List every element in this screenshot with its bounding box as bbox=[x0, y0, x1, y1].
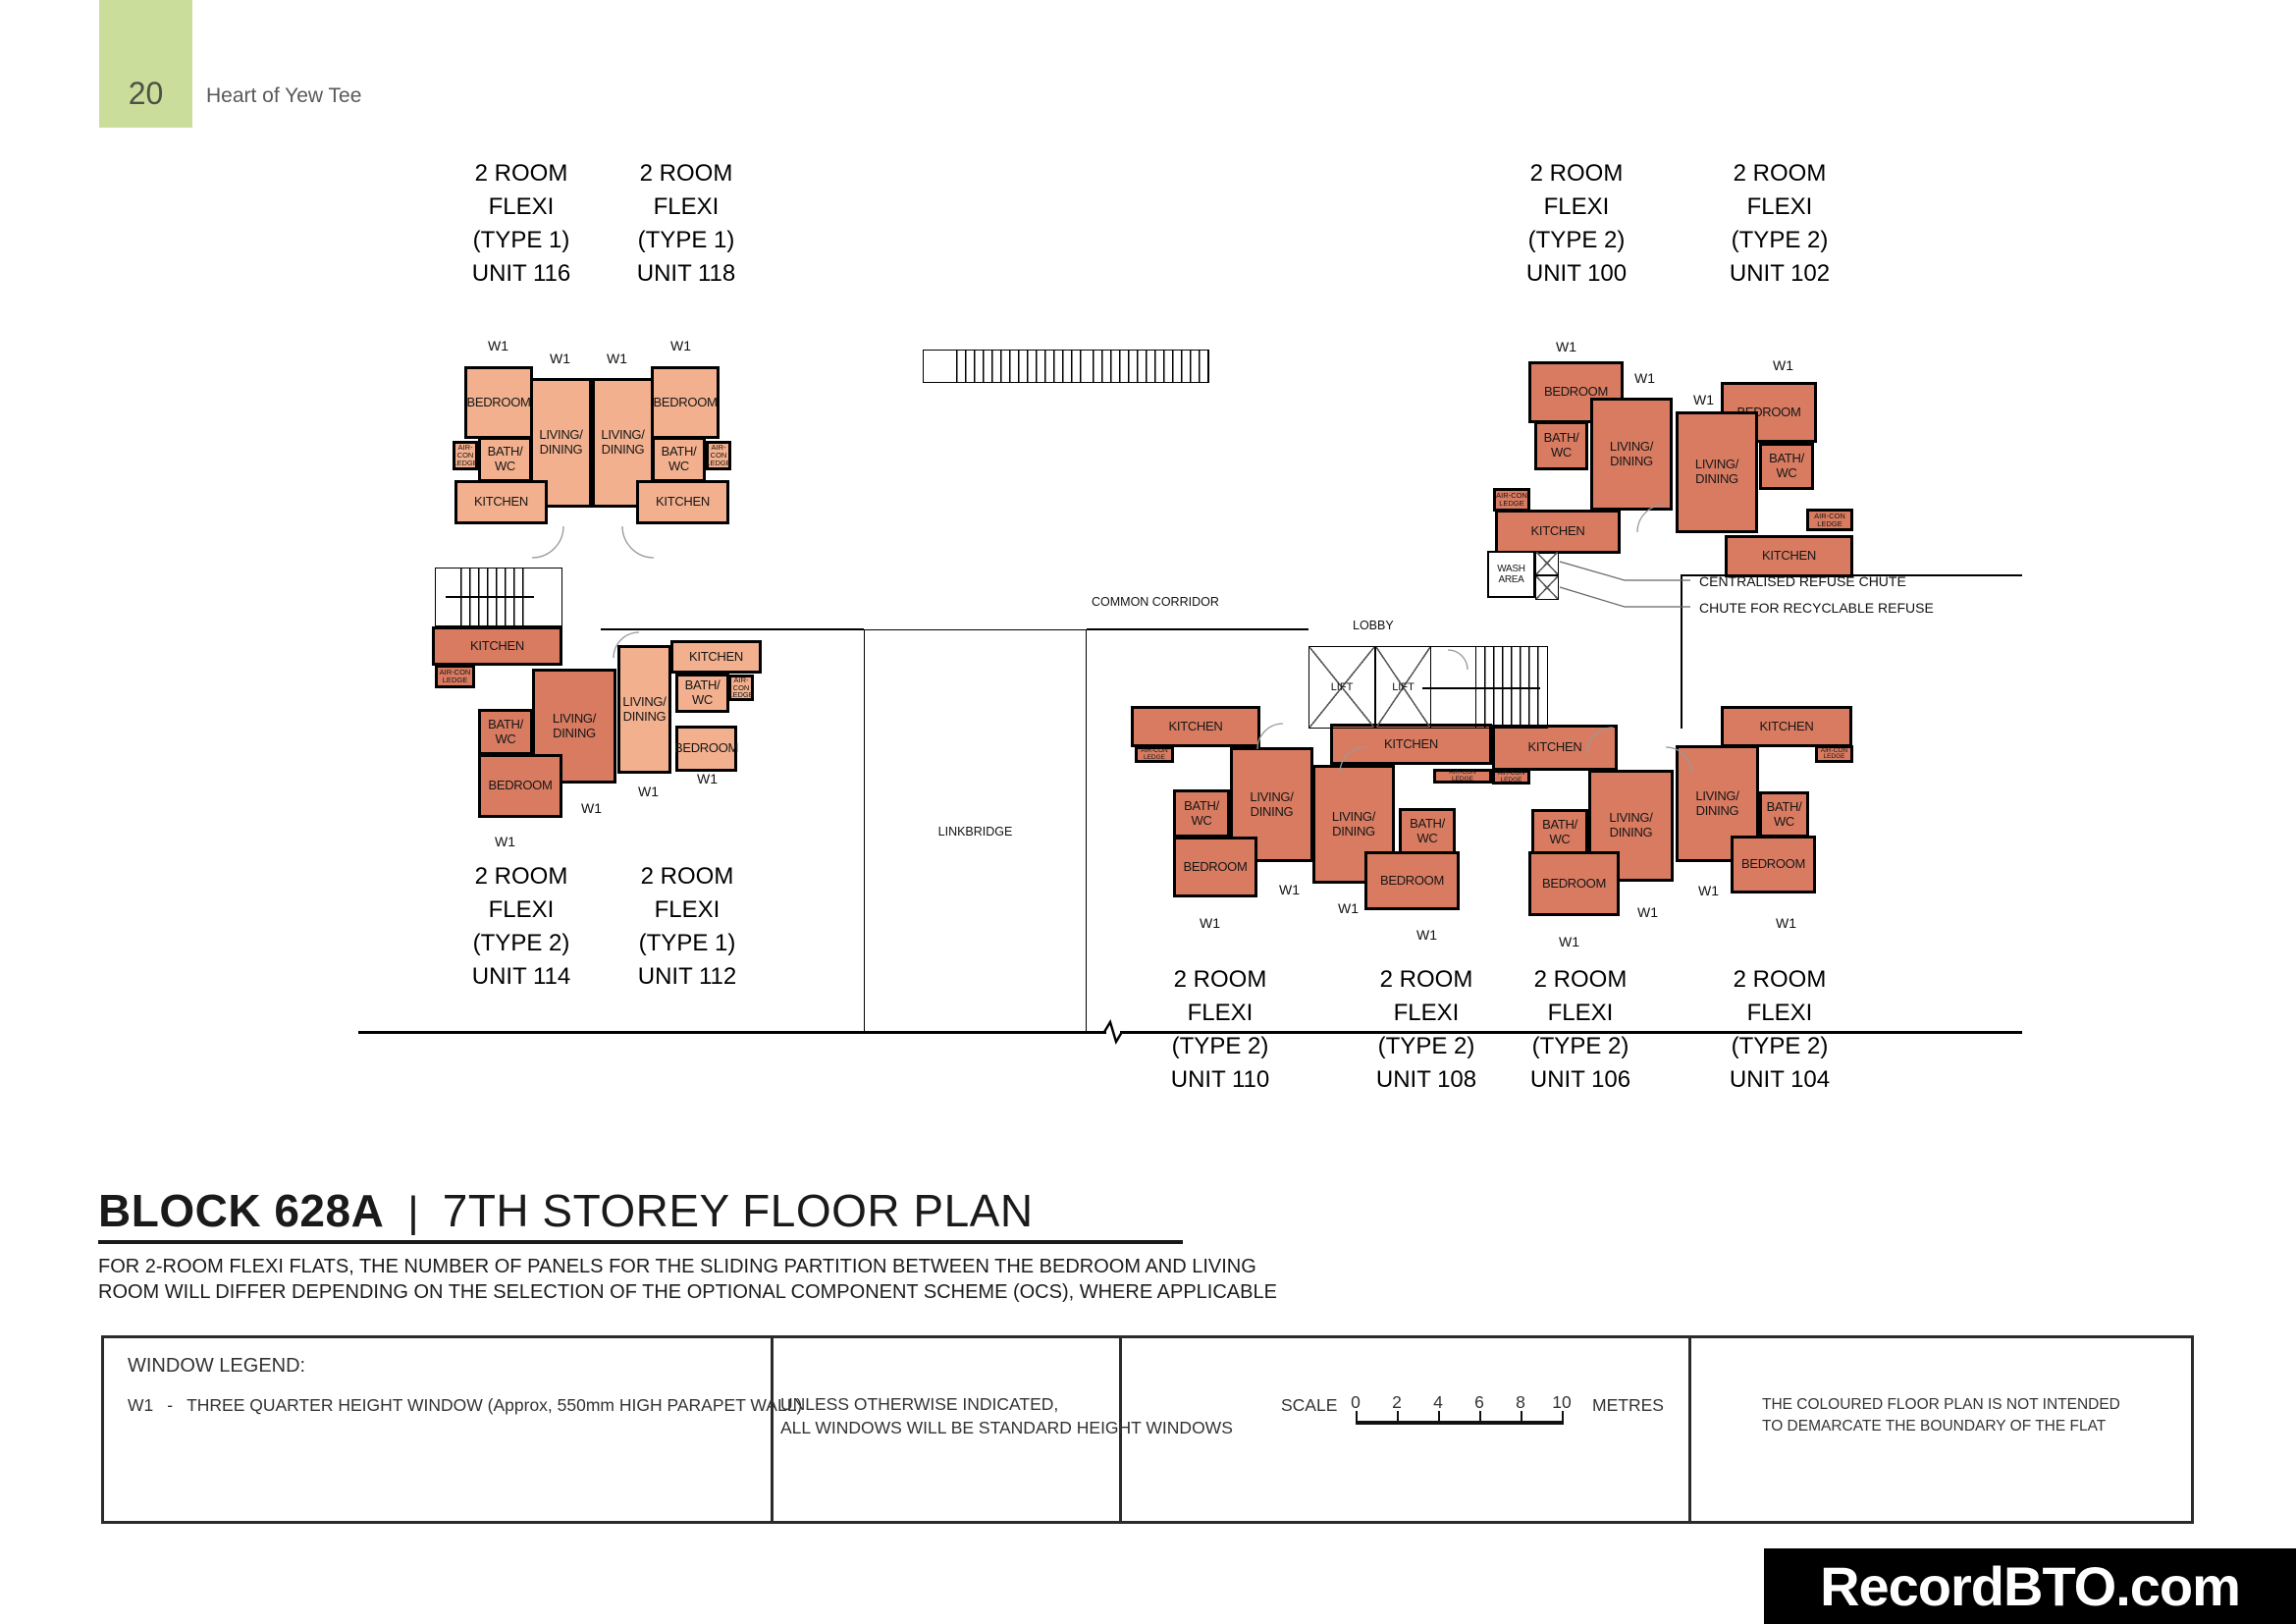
unit-label-108: 2 ROOM FLEXI (TYPE 2) UNIT 108 bbox=[1376, 963, 1476, 1097]
unit-112-living-dining: LIVING/ DINING bbox=[617, 645, 671, 774]
w1-window-tag: W1 bbox=[1693, 392, 1714, 407]
boundary-note: THE COLOURED FLOOR PLAN IS NOT INTENDED … bbox=[1762, 1394, 2120, 1436]
unit-label-110: 2 ROOM FLEXI (TYPE 2) UNIT 110 bbox=[1171, 963, 1270, 1097]
unit-100-kitchen: KITCHEN bbox=[1495, 510, 1621, 554]
w1-window-tag: W1 bbox=[1698, 883, 1719, 898]
unit-label-118: 2 ROOM FLEXI (TYPE 1) UNIT 118 bbox=[637, 157, 736, 291]
unit-114-bedroom: BEDROOM bbox=[478, 754, 562, 818]
scale-tick-mark bbox=[1479, 1411, 1481, 1421]
unit-102-living-dining: LIVING/ DINING bbox=[1676, 411, 1758, 533]
unit-108-bath-wc: BATH/ WC bbox=[1399, 808, 1456, 854]
lift-label: LIFT bbox=[1331, 681, 1354, 693]
w1-description: THREE QUARTER HEIGHT WINDOW (Approx, 550… bbox=[187, 1395, 802, 1416]
unit-label-116: 2 ROOM FLEXI (TYPE 1) UNIT 116 bbox=[472, 157, 571, 291]
scale-tick-6: 6 bbox=[1474, 1392, 1484, 1413]
legend-divider bbox=[1688, 1335, 1691, 1524]
corridor-line bbox=[601, 628, 864, 630]
unit-106-aircon-ledge: AIR-CON LEDGE bbox=[1492, 770, 1530, 785]
corridor-line bbox=[1087, 628, 1308, 630]
annotation-recyclable-chute: CHUTE FOR RECYCLABLE REFUSE bbox=[1699, 600, 1934, 616]
w1-window-tag: W1 bbox=[697, 771, 718, 786]
scale-tick-4: 4 bbox=[1433, 1392, 1443, 1413]
scale-label: SCALE bbox=[1281, 1395, 1337, 1416]
unit-112-bedroom: BEDROOM bbox=[675, 726, 737, 772]
unit-104-bath-wc: BATH/ WC bbox=[1759, 791, 1809, 838]
wash-area: WASH AREA bbox=[1487, 551, 1535, 598]
unit-label-104: 2 ROOM FLEXI (TYPE 2) UNIT 104 bbox=[1730, 963, 1830, 1097]
unit-label-106: 2 ROOM FLEXI (TYPE 2) UNIT 106 bbox=[1530, 963, 1630, 1097]
w1-window-tag: W1 bbox=[1559, 934, 1579, 949]
window-legend-row: W1 - THREE QUARTER HEIGHT WINDOW (Approx… bbox=[128, 1395, 802, 1416]
plan-title: BLOCK 628A | 7TH STOREY FLOOR PLAN bbox=[98, 1184, 1034, 1237]
w1-code: W1 bbox=[128, 1395, 153, 1416]
unit-114-bath-wc: BATH/ WC bbox=[478, 709, 533, 755]
unit-102-bath-wc: BATH/ WC bbox=[1759, 443, 1814, 490]
scale-tick-mark bbox=[1521, 1411, 1522, 1421]
corridor-line bbox=[1681, 574, 2022, 576]
storey-title: 7TH STOREY FLOOR PLAN bbox=[443, 1184, 1034, 1237]
unit-110-aircon-ledge: AIR-CON LEDGE bbox=[1135, 746, 1174, 763]
w1-window-tag: W1 bbox=[550, 351, 570, 366]
unit-label-114: 2 ROOM FLEXI (TYPE 2) UNIT 114 bbox=[472, 860, 571, 994]
w1-window-tag: W1 bbox=[638, 784, 659, 799]
windows-note: UNLESS OTHERWISE INDICATED, ALL WINDOWS … bbox=[780, 1392, 1233, 1439]
w1-window-tag: W1 bbox=[495, 834, 515, 849]
unit-112-kitchen: KITCHEN bbox=[670, 640, 762, 674]
unit-106-bath-wc: BATH/ WC bbox=[1531, 809, 1588, 856]
unit-106-bedroom: BEDROOM bbox=[1528, 851, 1620, 916]
unit-104-kitchen: KITCHEN bbox=[1721, 706, 1852, 747]
refuse-chute-box bbox=[1535, 551, 1559, 575]
unit-102-kitchen: KITCHEN bbox=[1725, 535, 1853, 577]
block-title: BLOCK 628A bbox=[98, 1184, 384, 1237]
scale-tick-10: 10 bbox=[1552, 1392, 1571, 1413]
brochure-page: 20 Heart of Yew Tee 2 ROOM FLEXI (TYPE 1… bbox=[0, 0, 2296, 1624]
watermark-box: RecordBTO.com bbox=[1764, 1548, 2296, 1624]
title-separator: | bbox=[407, 1188, 418, 1237]
window-legend-title: WINDOW LEGEND: bbox=[128, 1355, 305, 1378]
watermark: RecordBTO.com bbox=[1820, 1554, 2240, 1618]
page-number: 20 bbox=[129, 76, 164, 112]
trellis-stripes bbox=[956, 351, 1082, 382]
scale-tick-mark bbox=[1438, 1411, 1440, 1421]
unit-118-kitchen: KITCHEN bbox=[636, 480, 729, 524]
w1-window-tag: W1 bbox=[488, 338, 508, 353]
w1-window-tag: W1 bbox=[1634, 370, 1655, 386]
stair-line bbox=[446, 596, 534, 598]
unit-114-aircon-ledge: AIR-CON LEDGE bbox=[435, 665, 475, 688]
scale-tick-mark bbox=[1356, 1411, 1358, 1421]
w1-window-tag: W1 bbox=[1637, 904, 1658, 920]
page-number-box: 20 bbox=[99, 0, 192, 128]
w1-window-tag: W1 bbox=[670, 338, 691, 353]
w1-dash: - bbox=[167, 1395, 173, 1416]
title-note: FOR 2-ROOM FLEXI FLATS, THE NUMBER OF PA… bbox=[98, 1254, 1277, 1305]
trellis-stripes bbox=[1093, 351, 1208, 382]
unit-110-bath-wc: BATH/ WC bbox=[1173, 789, 1230, 838]
ground-line bbox=[1120, 1031, 2022, 1034]
brochure-title: Heart of Yew Tee bbox=[206, 84, 361, 108]
unit-112-aircon-ledge: AIR-CON LEDGE bbox=[728, 675, 754, 701]
unit-108-kitchen: KITCHEN bbox=[1330, 724, 1492, 765]
scale-tick-8: 8 bbox=[1516, 1392, 1525, 1413]
w1-window-tag: W1 bbox=[1773, 357, 1793, 373]
w1-window-tag: W1 bbox=[1776, 915, 1796, 931]
w1-window-tag: W1 bbox=[607, 351, 627, 366]
lift-label: LIFT bbox=[1392, 681, 1415, 693]
title-underline bbox=[98, 1240, 1183, 1244]
w1-window-tag: W1 bbox=[1556, 339, 1576, 354]
scale-tick-mark bbox=[1562, 1411, 1564, 1421]
w1-window-tag: W1 bbox=[1416, 927, 1437, 943]
scale-bar bbox=[1356, 1421, 1564, 1425]
unit-label-102: 2 ROOM FLEXI (TYPE 2) UNIT 102 bbox=[1730, 157, 1830, 291]
common-corridor-label: COMMON CORRIDOR bbox=[1092, 595, 1219, 609]
unit-106-kitchen: KITCHEN bbox=[1492, 725, 1618, 771]
legend-divider bbox=[771, 1335, 774, 1524]
unit-116-kitchen: KITCHEN bbox=[454, 480, 548, 524]
w1-window-tag: W1 bbox=[581, 800, 602, 816]
lobby-stairs bbox=[1475, 646, 1548, 729]
leader-line bbox=[1560, 562, 1690, 607]
unit-110-bedroom: BEDROOM bbox=[1173, 837, 1257, 897]
w1-window-tag: W1 bbox=[1338, 900, 1359, 916]
unit-118-bath-wc: BATH/ WC bbox=[652, 437, 706, 482]
linkbridge-label: LINKBRIDGE bbox=[938, 825, 1013, 839]
unit-100-aircon-ledge: AIR-CON LEDGE bbox=[1493, 488, 1530, 512]
unit-116-bedroom: BEDROOM bbox=[464, 366, 533, 439]
unit-116-aircon-ledge: AIR-CON LEDGE bbox=[453, 441, 478, 470]
lobby-label: LOBBY bbox=[1353, 619, 1394, 632]
scale-tick-mark bbox=[1397, 1411, 1399, 1421]
unit-118-bedroom: BEDROOM bbox=[651, 366, 720, 439]
unit-100-living-dining: LIVING/ DINING bbox=[1590, 398, 1673, 511]
w1-window-tag: W1 bbox=[1279, 882, 1300, 897]
unit-108-bedroom: BEDROOM bbox=[1364, 851, 1460, 910]
ground-line bbox=[358, 1031, 1106, 1034]
unit-110-kitchen: KITCHEN bbox=[1131, 706, 1260, 747]
scale-tick-0: 0 bbox=[1351, 1392, 1361, 1413]
stair-line bbox=[1422, 687, 1540, 689]
unit-label-112: 2 ROOM FLEXI (TYPE 1) UNIT 112 bbox=[638, 860, 737, 994]
trellis-strip bbox=[923, 350, 1209, 383]
unit-104-aircon-ledge: AIR-CON LEDGE bbox=[1815, 745, 1853, 763]
lift-box: LIFT bbox=[1308, 646, 1375, 729]
scale-tick-2: 2 bbox=[1392, 1392, 1402, 1413]
unit-100-bath-wc: BATH/ WC bbox=[1534, 421, 1588, 470]
unit-118-aircon-ledge: AIR-CON LEDGE bbox=[706, 441, 731, 470]
unit-108-aircon-ledge: AIR-CON LEDGE bbox=[1433, 769, 1492, 784]
scale-unit: METRES bbox=[1592, 1395, 1664, 1416]
unit-102-aircon-ledge: AIR-CON LEDGE bbox=[1806, 509, 1853, 531]
unit-104-bedroom: BEDROOM bbox=[1731, 836, 1816, 893]
recyclable-chute-box bbox=[1535, 575, 1559, 600]
unit-116-bath-wc: BATH/ WC bbox=[478, 437, 532, 482]
linkbridge: LINKBRIDGE bbox=[864, 629, 1087, 1033]
w1-window-tag: W1 bbox=[1200, 915, 1220, 931]
unit-label-100: 2 ROOM FLEXI (TYPE 2) UNIT 100 bbox=[1526, 157, 1627, 291]
unit-114-kitchen: KITCHEN bbox=[432, 626, 562, 666]
unit-112-bath-wc: BATH/ WC bbox=[675, 674, 729, 713]
corridor-line bbox=[1681, 574, 1682, 729]
stairwell bbox=[435, 568, 562, 626]
